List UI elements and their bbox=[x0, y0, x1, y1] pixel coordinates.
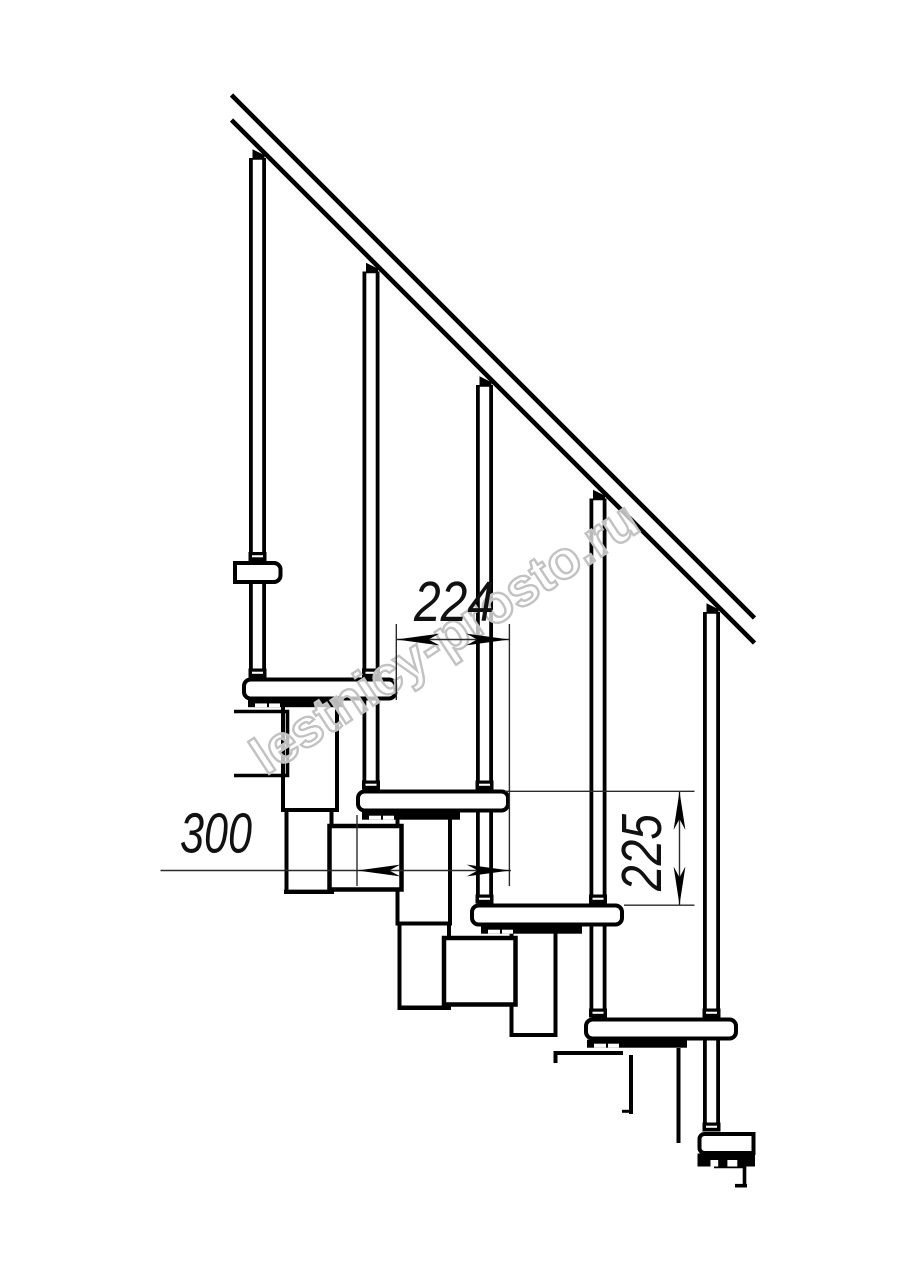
svg-text:300: 300 bbox=[180, 802, 252, 866]
svg-text:225: 225 bbox=[610, 814, 674, 892]
svg-text:224: 224 bbox=[413, 570, 494, 634]
